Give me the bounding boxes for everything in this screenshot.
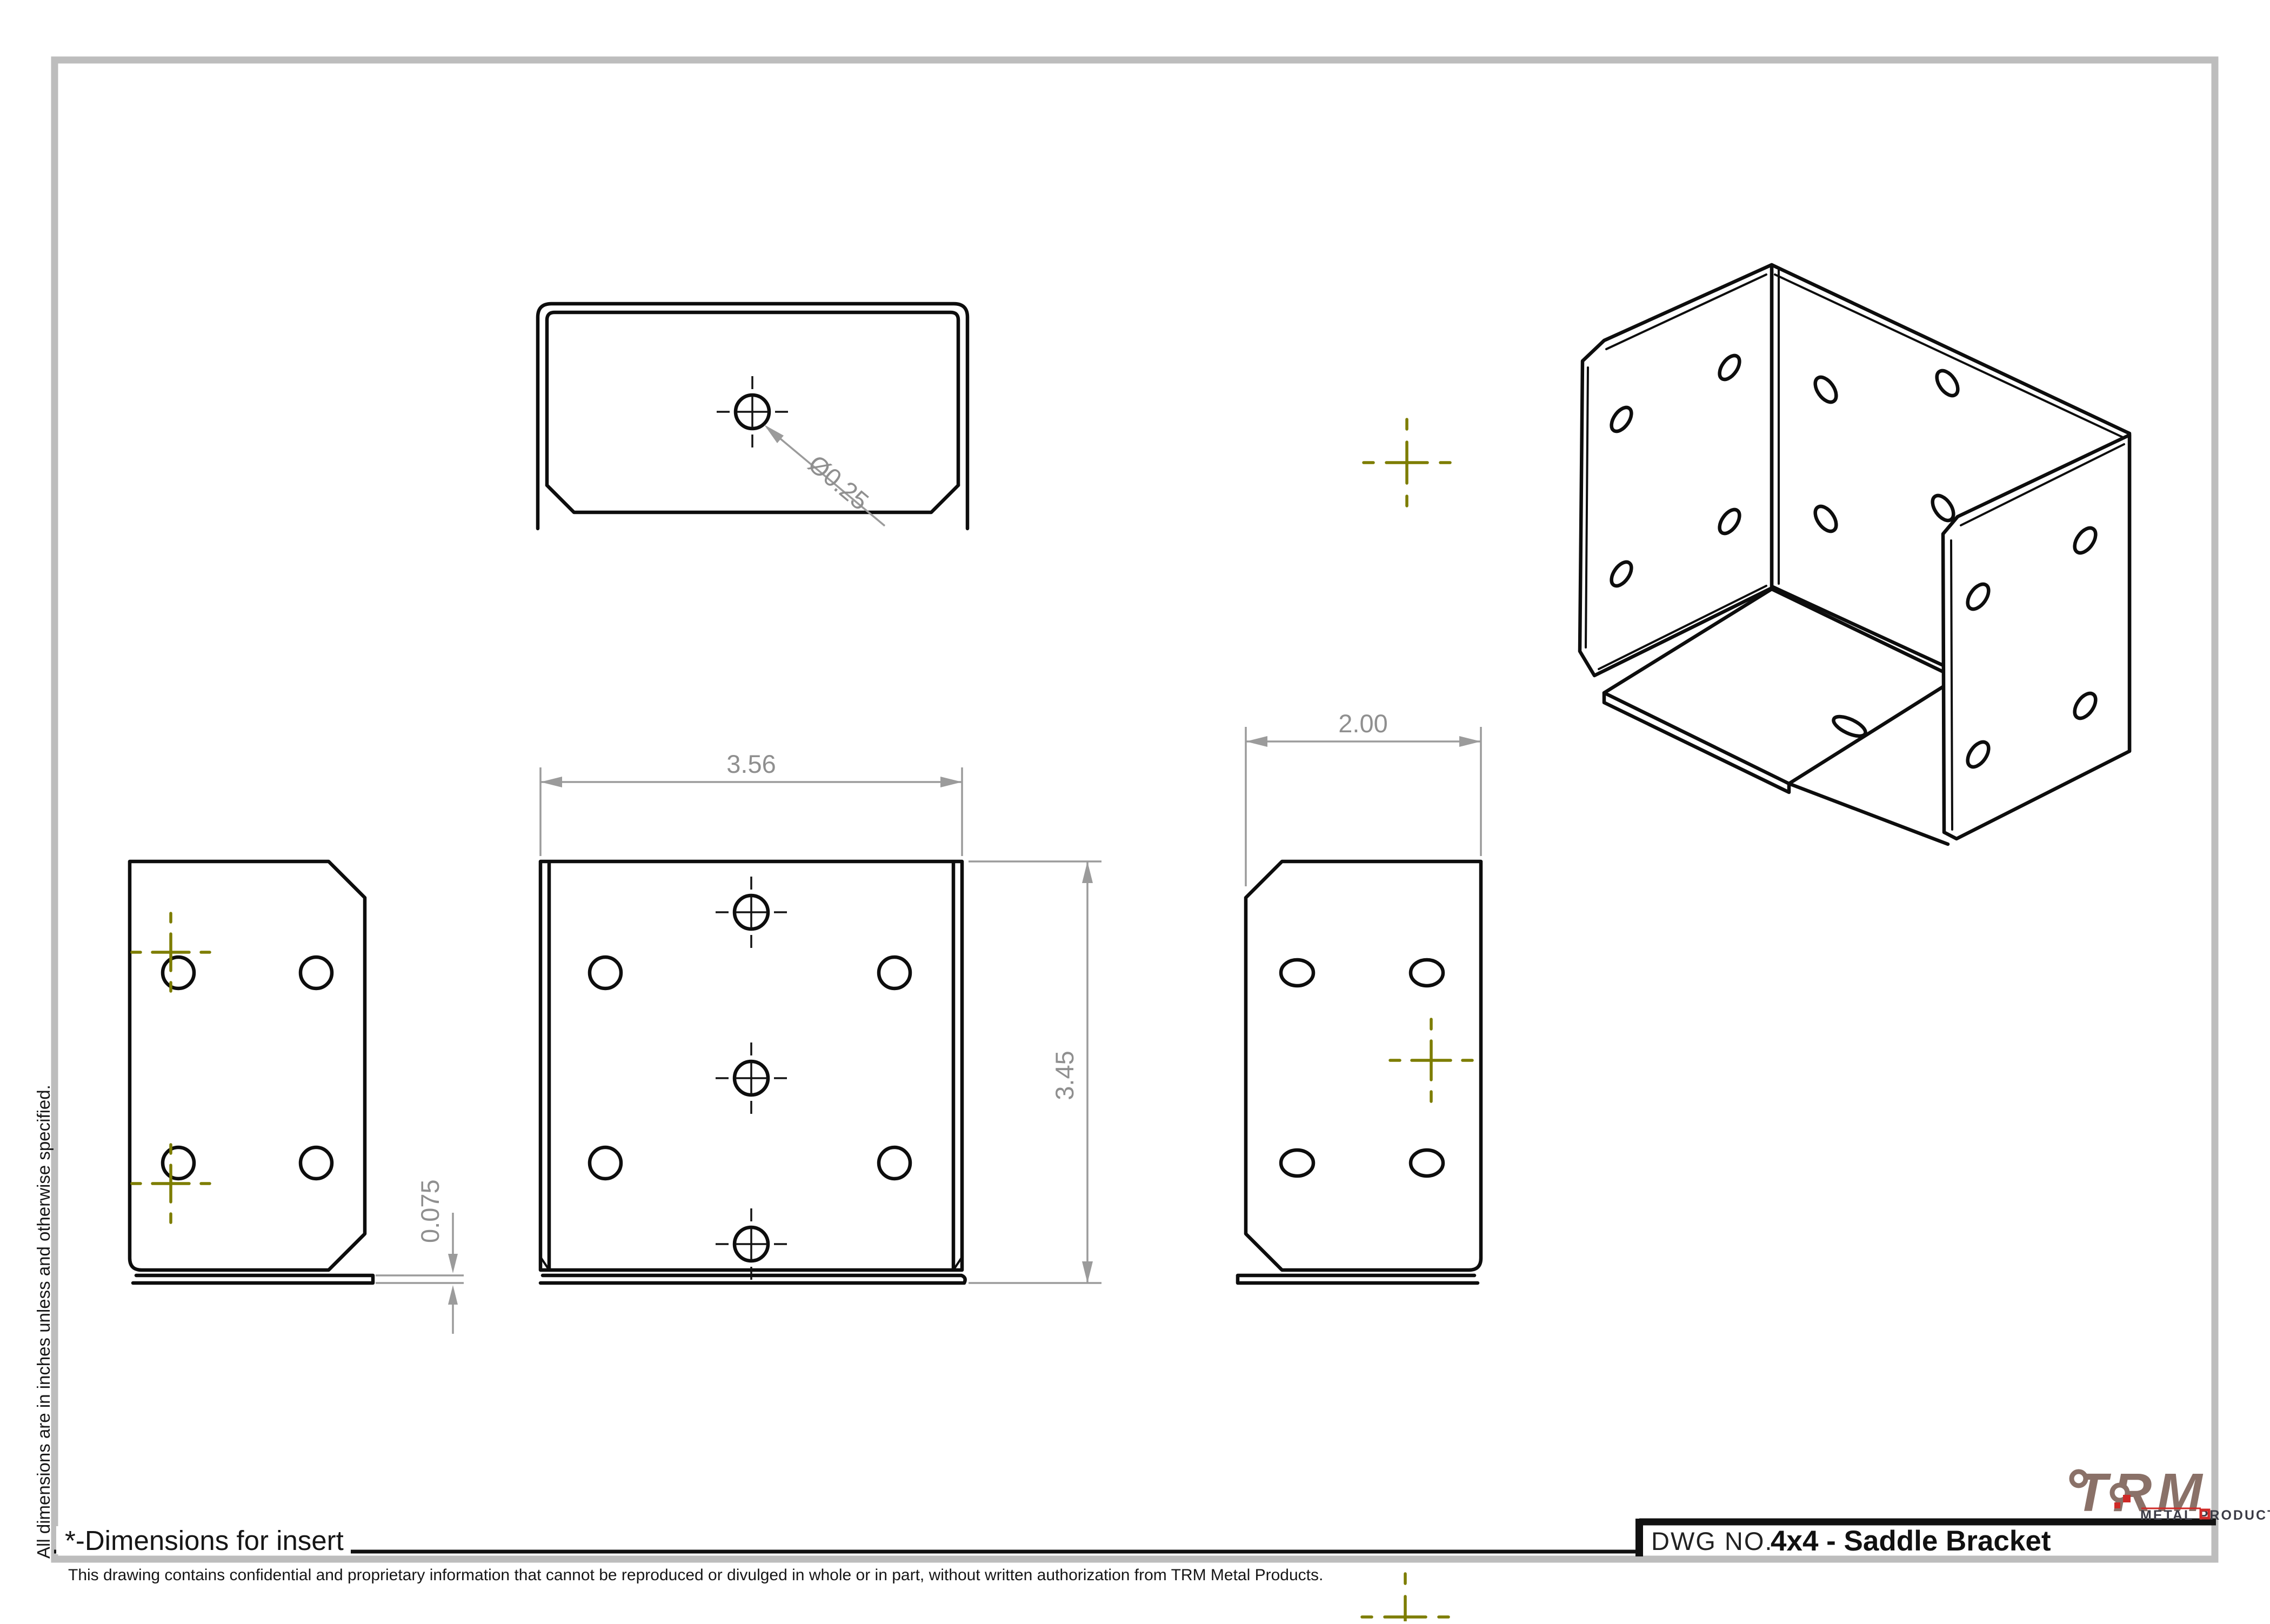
right-bottom-lip [1238, 1275, 1478, 1283]
hole-diameter-dim: Ø0.25 [803, 449, 874, 516]
logo-ring-icon [2072, 1472, 2086, 1486]
top-view: Ø0.25 [538, 304, 967, 529]
front-height-dimension: 3.45 [969, 861, 1101, 1283]
logo-red-square-icon [2114, 1502, 2120, 1508]
confidentiality-note: This drawing contains confidential and p… [68, 1566, 1323, 1584]
iso-web-front-edge [1789, 784, 1948, 844]
side-depth-dim-text: 2.00 [1338, 709, 1387, 738]
front-width-dimension: 3.56 [540, 750, 962, 856]
trm-logo: TRM METAL PRODUCTS [2072, 1462, 2270, 1523]
drawing-sheet: Ø0.25 [0, 0, 2270, 1621]
sheet-border [55, 60, 2215, 1559]
left-plate [130, 861, 365, 1270]
hole-leader-arrow [764, 425, 784, 443]
front-bottom-lip [540, 1275, 965, 1283]
left-bottom-lip [133, 1275, 373, 1283]
sketch-point [1364, 419, 1450, 506]
drawing-canvas: Ø0.25 [0, 0, 2270, 1621]
drawing-title: 4x4 - Saddle Bracket [1771, 1525, 2051, 1557]
front-width-dim-text: 3.56 [726, 750, 776, 778]
isometric-view [1580, 265, 2129, 844]
insert-note: *-Dimensions for insert [65, 1525, 344, 1556]
sheet-frame [54, 60, 2215, 1559]
logo-red-square-icon [2123, 1495, 2131, 1502]
title-block: DWG NO. 4x4 - Saddle Bracket [1639, 1519, 2216, 1557]
left-side-view: 0.075 [130, 861, 464, 1334]
flange-thickness-dimension: 0.075 [376, 1179, 464, 1334]
top-view-bottom-edge [547, 485, 958, 512]
right-plate [1246, 861, 1481, 1270]
dwg-no-label: DWG NO. [1651, 1527, 1773, 1555]
margin-note-vertical: All dimensions are in inches unless and … [34, 1085, 54, 1559]
flange-thickness-dim-text: 0.075 [416, 1179, 444, 1243]
sketch-point [1362, 1574, 1448, 1621]
front-view: 3.56 3.45 [540, 750, 1101, 1283]
right-side-view: 2.00 [1238, 709, 1481, 1283]
front-height-dim-text: 3.45 [1050, 1051, 1079, 1100]
iso-right-thickness [1951, 540, 1952, 830]
